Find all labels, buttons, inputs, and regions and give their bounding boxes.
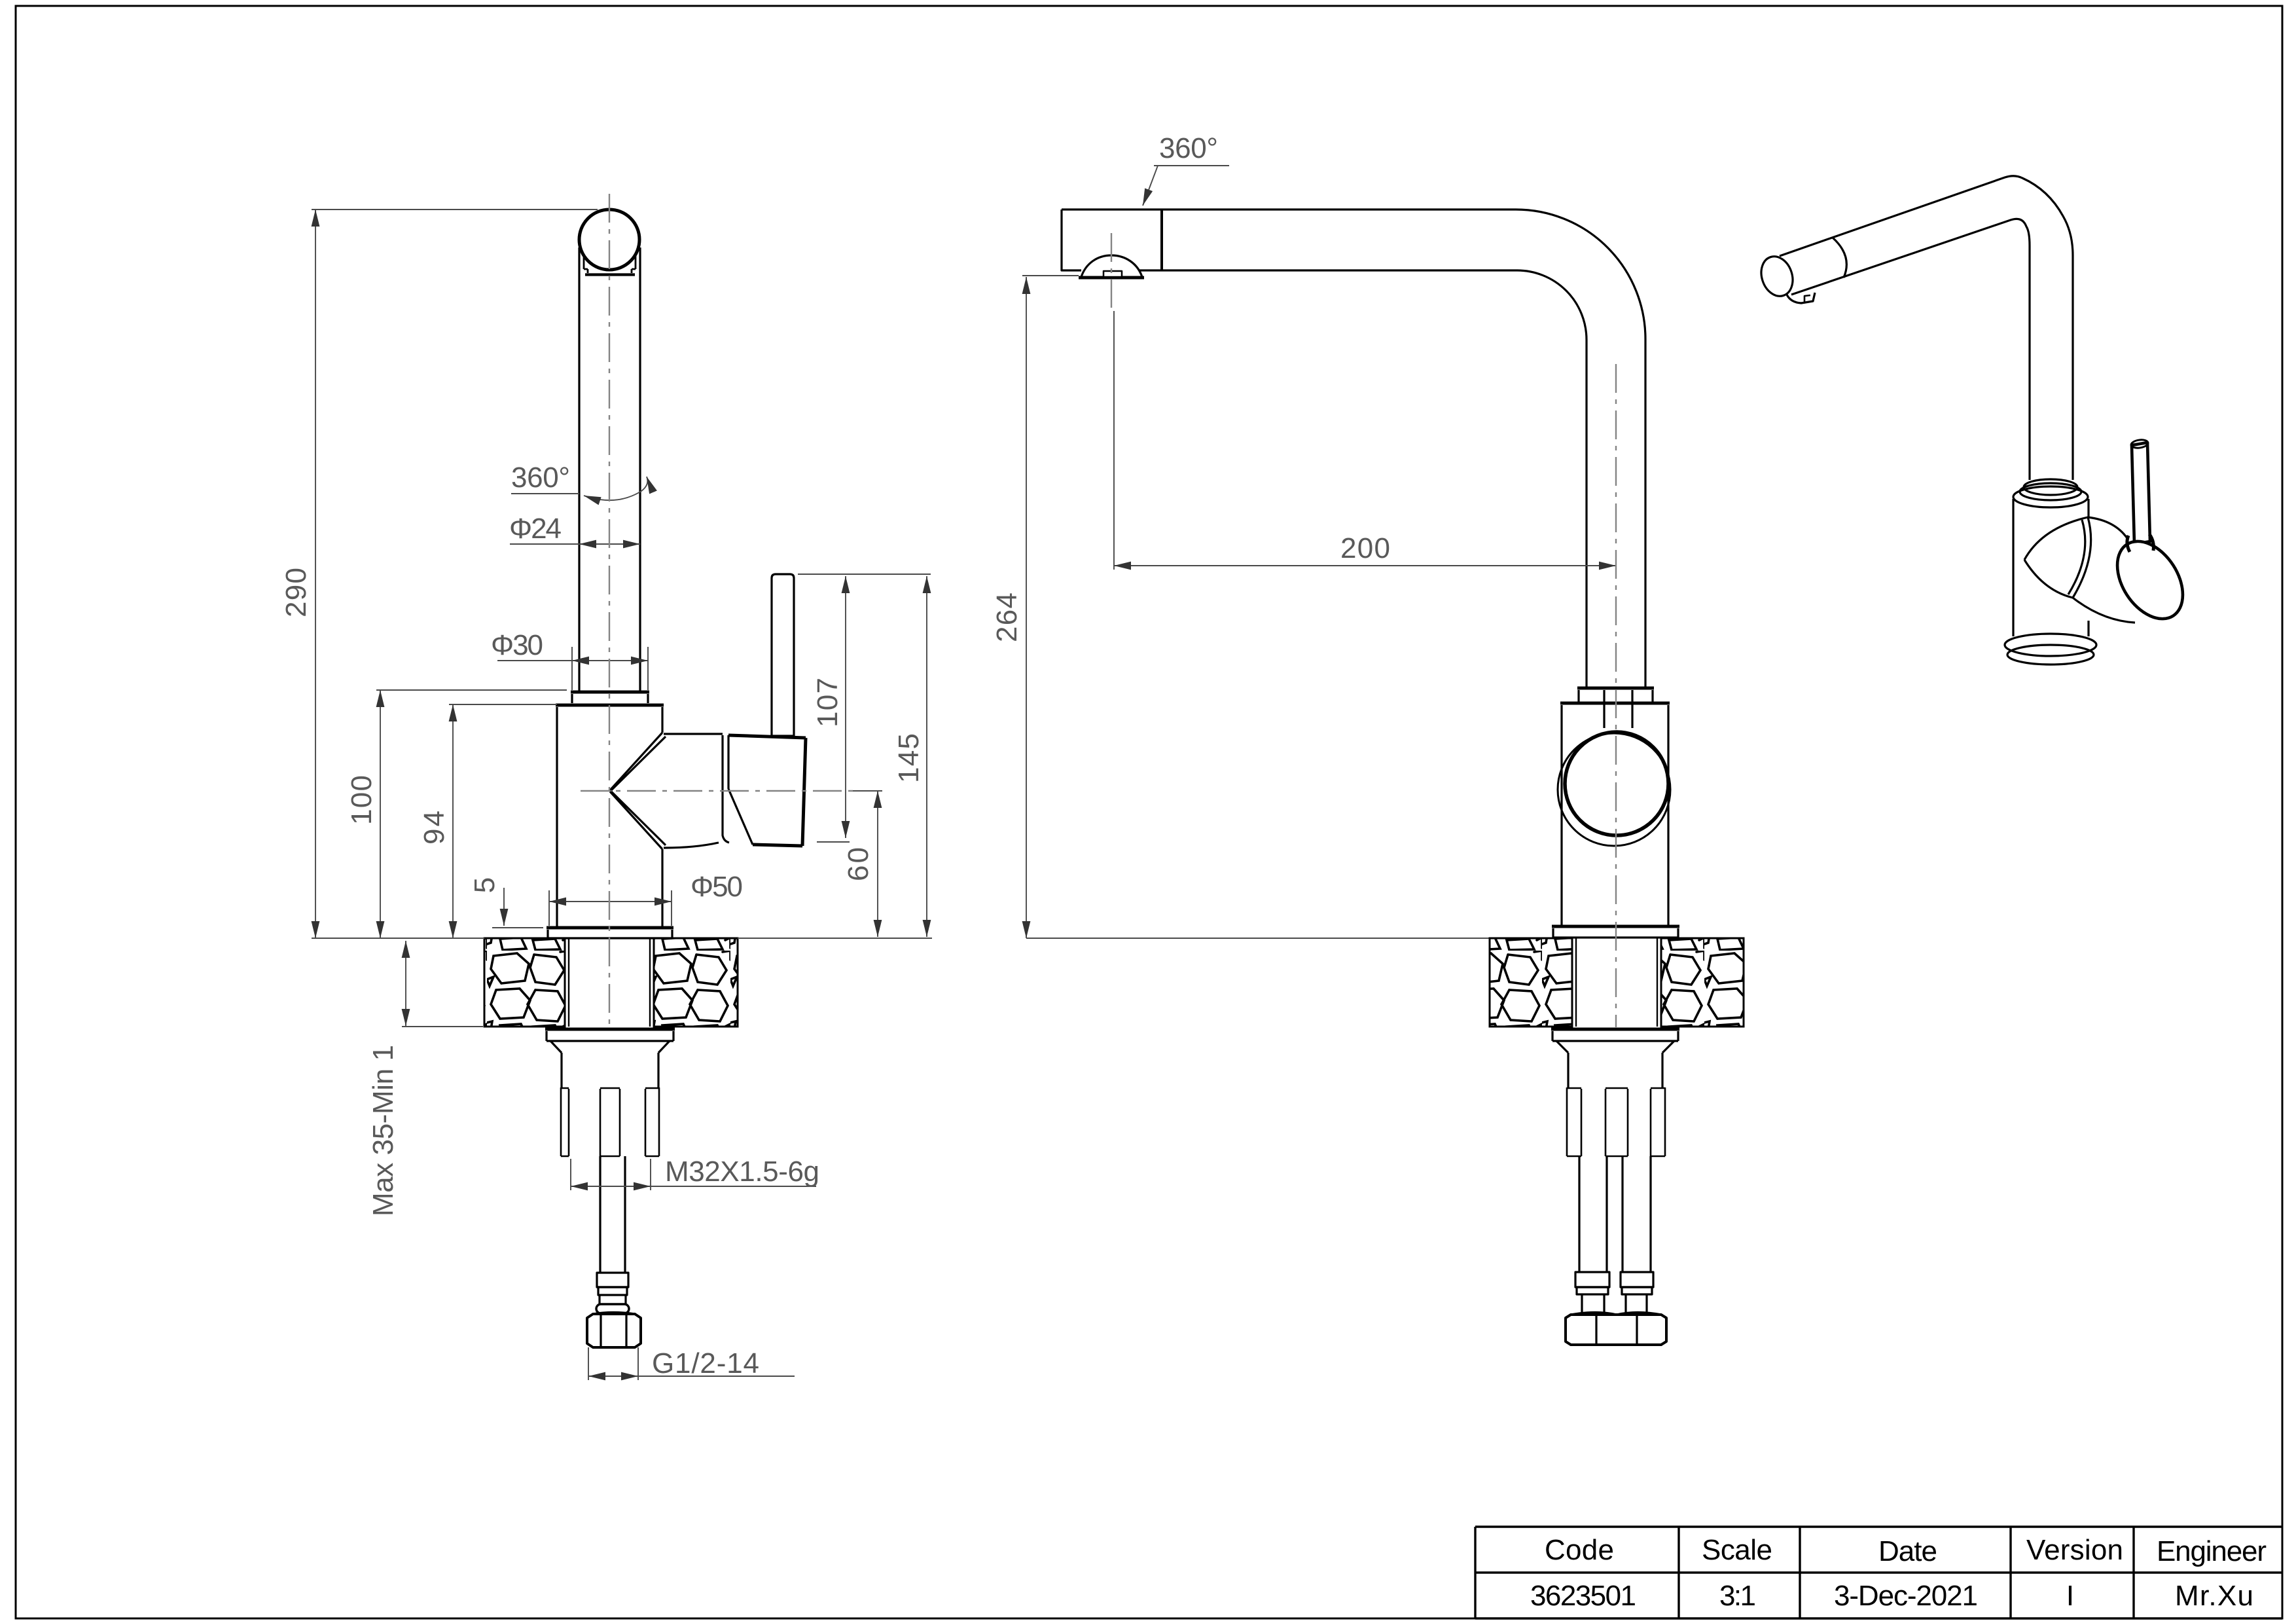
svg-text:Φ50: Φ50 <box>691 871 743 903</box>
svg-text:Engineer: Engineer <box>2157 1535 2267 1567</box>
svg-text:360°: 360° <box>511 462 570 494</box>
svg-text:3623501: 3623501 <box>1530 1580 1636 1612</box>
svg-text:Φ30: Φ30 <box>491 629 543 661</box>
svg-text:5: 5 <box>469 877 501 893</box>
svg-text:Date: Date <box>1878 1535 1937 1567</box>
svg-text:Version: Version <box>2026 1534 2123 1566</box>
svg-text:100: 100 <box>346 775 378 825</box>
svg-text:145: 145 <box>893 733 925 783</box>
svg-text:Φ24: Φ24 <box>509 513 562 545</box>
svg-text:3-Dec-2021: 3-Dec-2021 <box>1834 1580 1978 1612</box>
svg-text:290: 290 <box>280 568 312 617</box>
svg-text:I: I <box>2066 1580 2074 1612</box>
svg-text:3:1: 3:1 <box>1719 1580 1756 1612</box>
svg-text:360°: 360° <box>1159 132 1218 164</box>
svg-text:M32X1.5-6g: M32X1.5-6g <box>665 1156 819 1188</box>
svg-text:264: 264 <box>991 593 1023 642</box>
svg-text:200: 200 <box>1340 532 1390 564</box>
svg-text:Code: Code <box>1545 1534 1614 1566</box>
svg-text:107: 107 <box>812 678 844 727</box>
svg-text:Mr.Xu: Mr.Xu <box>2175 1580 2253 1612</box>
svg-text:Max 35-Min 1: Max 35-Min 1 <box>367 1045 399 1216</box>
svg-text:Scale: Scale <box>1702 1534 1772 1566</box>
svg-text:G1/2-14: G1/2-14 <box>652 1347 759 1379</box>
